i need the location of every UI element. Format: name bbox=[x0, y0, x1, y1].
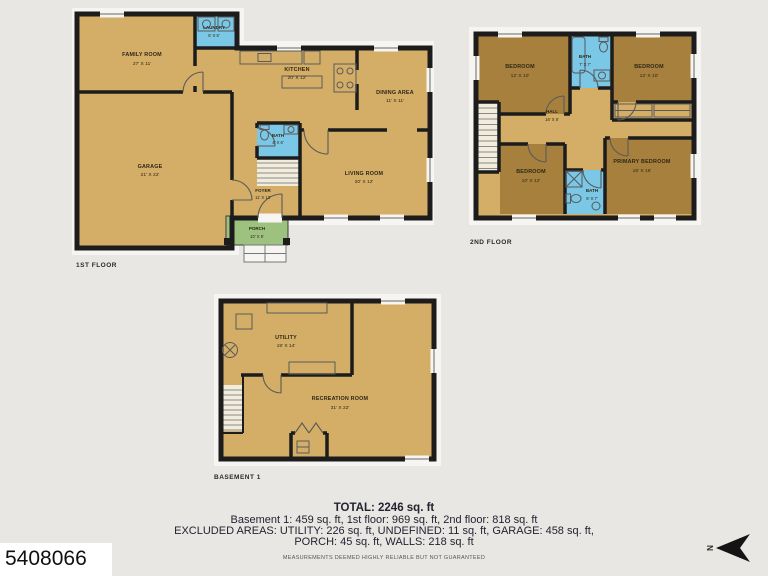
kitchen-label: KITCHEN bbox=[284, 67, 309, 73]
north-indicator: N bbox=[704, 530, 756, 566]
bath-1f-label: BATH bbox=[272, 133, 284, 138]
porch-dims: 10' X 5' bbox=[250, 234, 264, 239]
room-primary-bedroom bbox=[605, 138, 692, 214]
basement-caption: BASEMENT 1 bbox=[214, 474, 261, 481]
laundry-dims: 6' X 5' bbox=[208, 33, 220, 38]
bedroom-tr-label: BEDROOM bbox=[634, 64, 664, 70]
first-floor-caption: 1ST FLOOR bbox=[76, 262, 117, 269]
recreation-room-label: RECREATION ROOM bbox=[312, 396, 369, 402]
utility-label: UTILITY bbox=[275, 335, 297, 341]
stairs-2f bbox=[477, 102, 499, 172]
bath-bottom-dims: 6' X 7' bbox=[586, 196, 598, 201]
family-room-dims: 27' X 11' bbox=[133, 61, 151, 67]
bath-1f-dims: 4' X 6' bbox=[272, 140, 284, 145]
stairs-1f bbox=[257, 158, 300, 186]
excluded-areas-text-2: PORCH: 45 sq. ft, WALLS: 218 sq. ft bbox=[0, 537, 768, 548]
basement-plan: UTILITY 19' X 14' RECREATION ROOM 31' X … bbox=[213, 293, 443, 469]
foyer-label: FOYER bbox=[255, 188, 271, 193]
family-room-label: FAMILY ROOM bbox=[122, 52, 162, 58]
bedroom-tr-dims: 12' X 10' bbox=[640, 73, 659, 79]
stairs-basement bbox=[222, 385, 244, 431]
north-arrow-icon bbox=[716, 534, 750, 562]
disclaimer-text: MEASUREMENTS DEEMED HIGHLY RELIABLE BUT … bbox=[0, 553, 768, 564]
bedroom-bl-label: BEDROOM bbox=[516, 169, 546, 175]
bath-top-label: BATH bbox=[579, 54, 591, 59]
laundry-label: LAUNDRY bbox=[203, 25, 225, 30]
total-area-text: TOTAL: 2246 sq. ft bbox=[0, 503, 768, 514]
living-room-dims: 20' X 12' bbox=[355, 179, 374, 185]
recreation-room-dims: 31' X 22' bbox=[331, 405, 350, 411]
porch-label: PORCH bbox=[249, 226, 265, 231]
bedroom-bl-dims: 10' X 12' bbox=[522, 178, 541, 184]
dining-area-label: DINING AREA bbox=[376, 90, 414, 96]
second-floor-caption: 2ND FLOOR bbox=[470, 239, 512, 246]
foyer-dims: 11' X 13' bbox=[255, 195, 271, 200]
area-summary: TOTAL: 2246 sq. ft Basement 1: 459 sq. f… bbox=[0, 503, 768, 564]
room-garage bbox=[77, 92, 232, 248]
first-floor-plan: FAMILY ROOM 27' X 11' LAUNDRY 6' X 5' KI… bbox=[72, 8, 434, 274]
listing-id-strip: 5408066 bbox=[0, 543, 112, 576]
utility-dims: 19' X 14' bbox=[277, 343, 296, 349]
north-label: N bbox=[706, 545, 715, 551]
bath-bottom-label: BATH bbox=[586, 188, 598, 193]
second-floor-plan: BEDROOM 12' X 10' BATH 7' X 7' BEDROOM 1… bbox=[468, 26, 702, 228]
dining-area-dims: 11' X 11' bbox=[386, 98, 404, 104]
floorplan-page: { "page": { "listing_id": "5408066", "no… bbox=[0, 0, 768, 576]
garage-label: GARAGE bbox=[138, 164, 163, 170]
bath-top-dims: 7' X 7' bbox=[579, 62, 591, 67]
living-room-label: LIVING ROOM bbox=[345, 171, 384, 177]
garage-dims: 21' X 22' bbox=[141, 172, 160, 178]
kitchen-dims: 20' X 12' bbox=[288, 75, 307, 81]
bedroom-tl-label: BEDROOM bbox=[505, 64, 535, 70]
primary-bedroom-label: PRIMARY BEDROOM bbox=[613, 159, 671, 165]
primary-bedroom-dims: 15' X 16' bbox=[633, 168, 652, 174]
hall-dims: 16' X 6' bbox=[545, 117, 559, 122]
front-door-opening bbox=[258, 214, 282, 223]
bedroom-tl-dims: 12' X 10' bbox=[511, 73, 530, 79]
hall-label: HALL bbox=[546, 109, 558, 114]
listing-id: 5408066 bbox=[5, 547, 87, 571]
